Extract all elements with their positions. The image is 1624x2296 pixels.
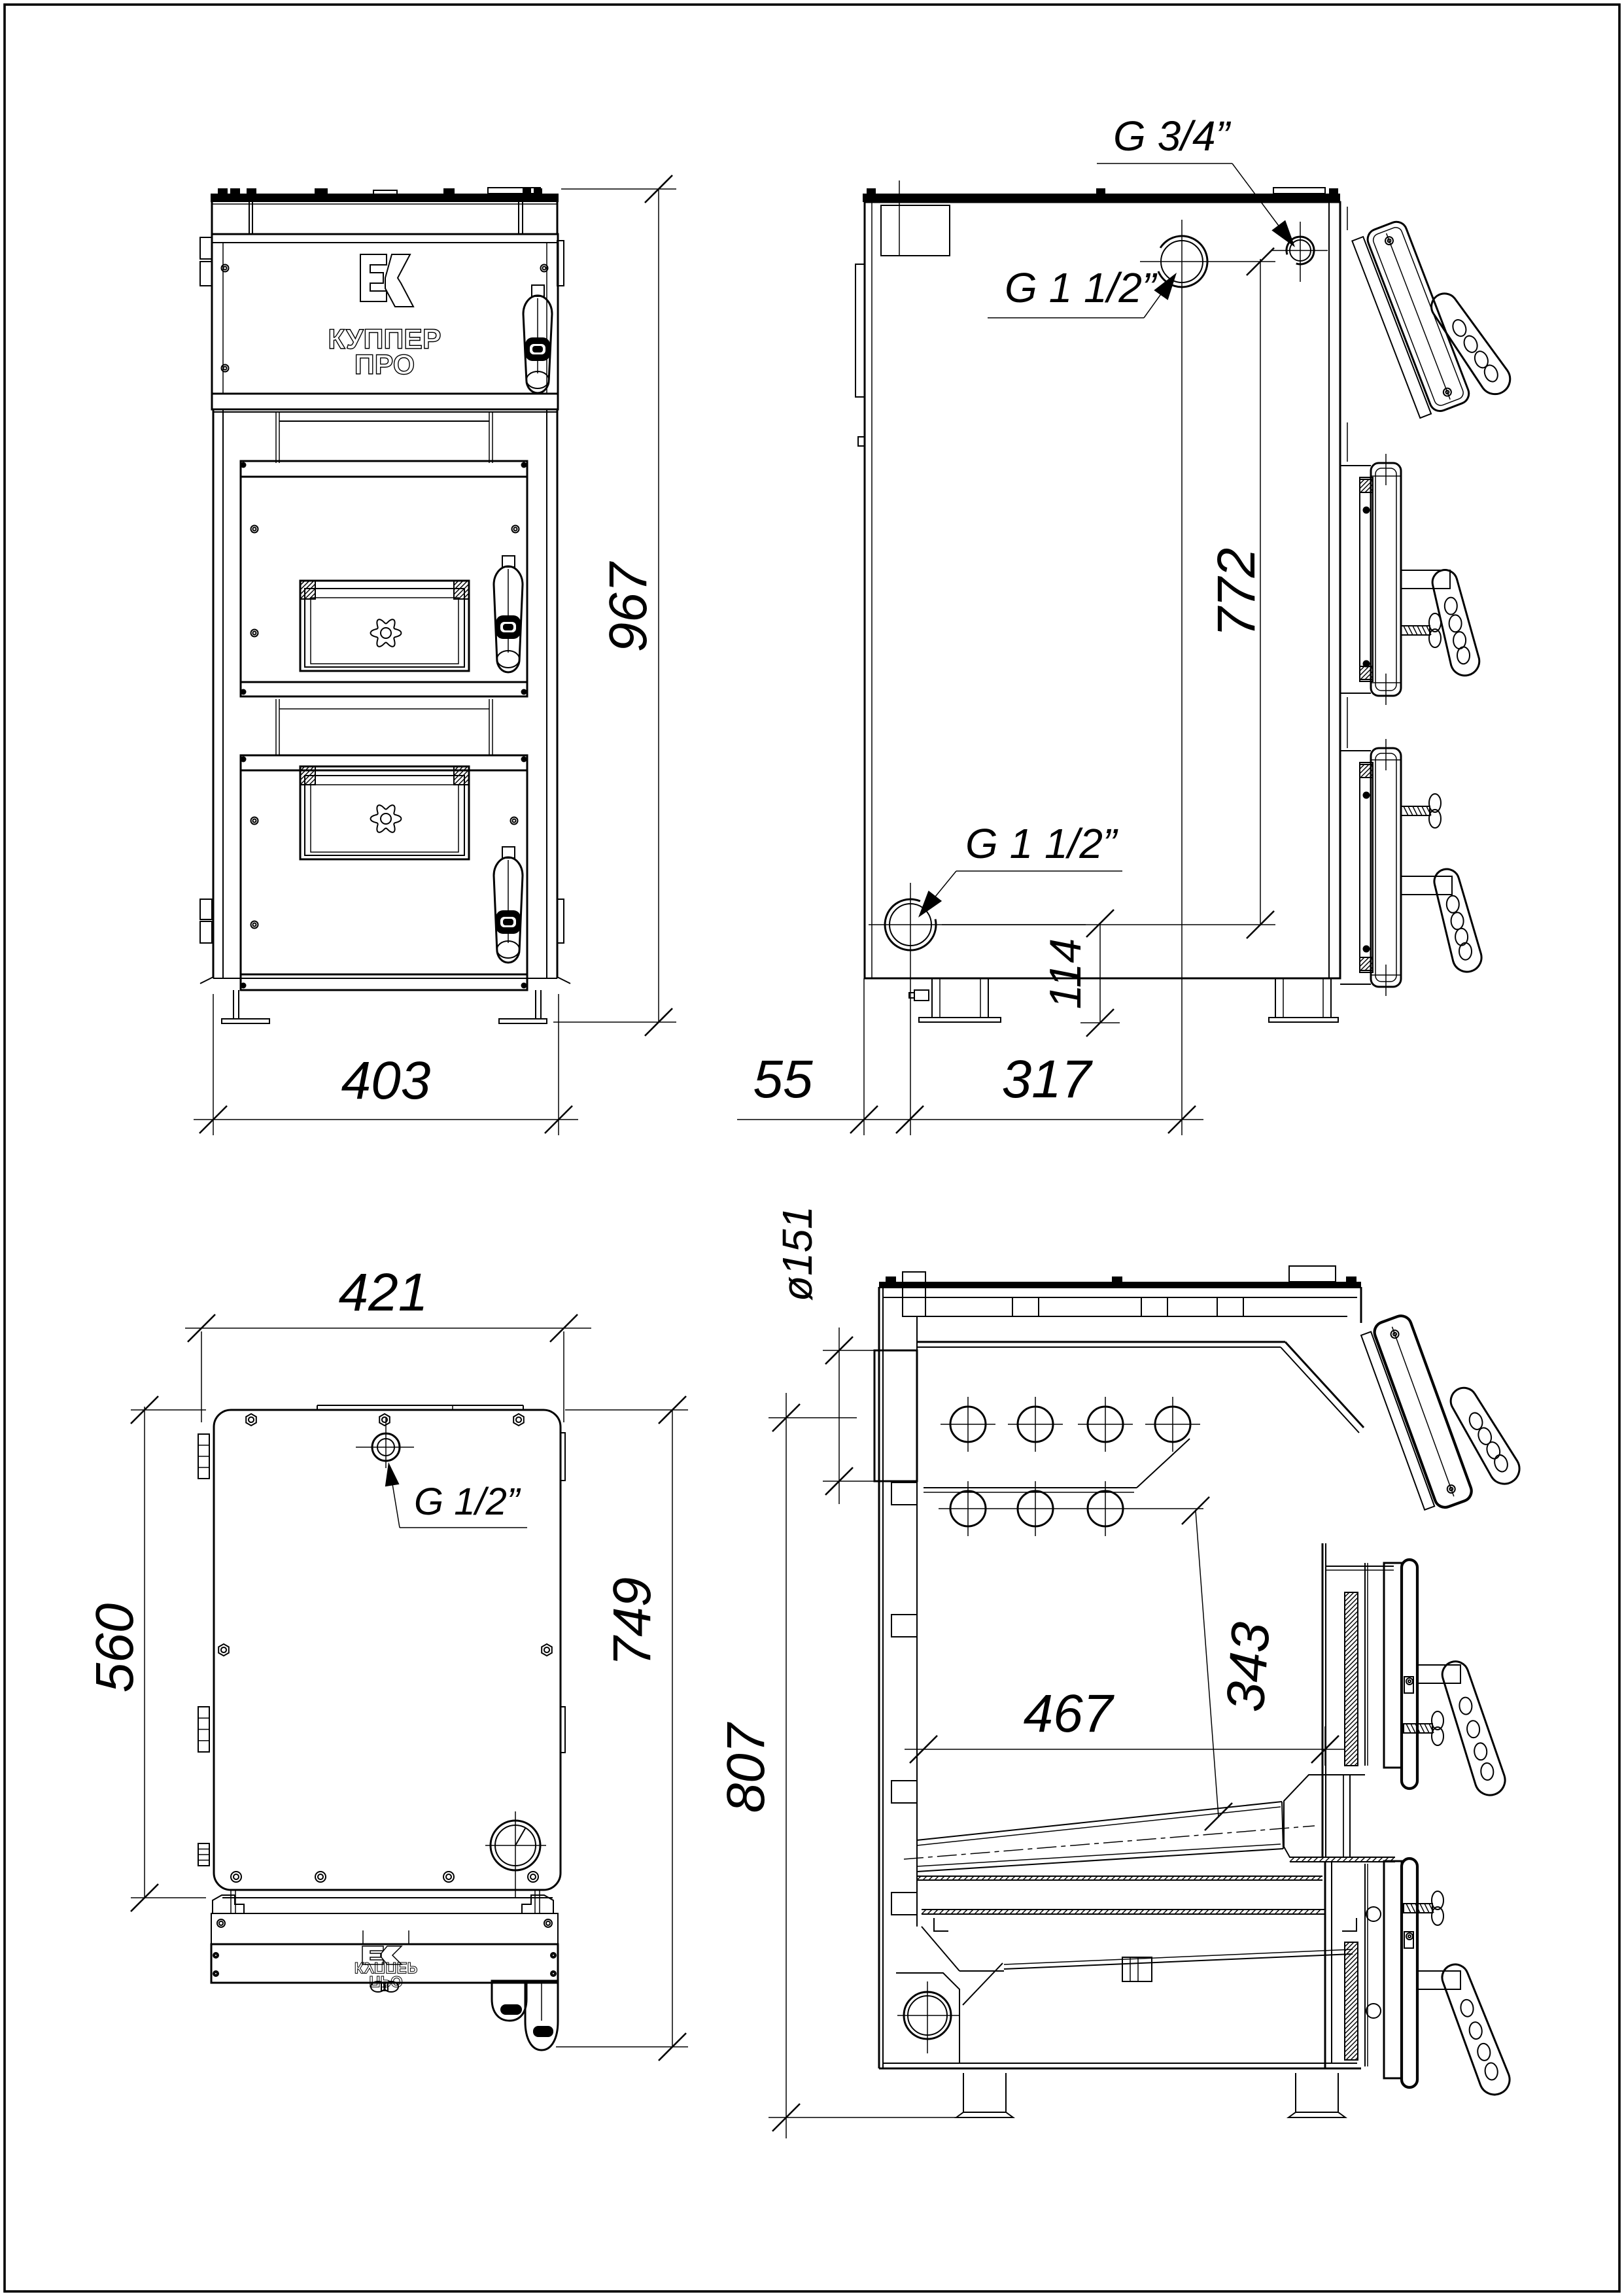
svg-text:G 1/2”: G 1/2” — [414, 1481, 521, 1523]
svg-text:ø151: ø151 — [774, 1206, 821, 1301]
svg-text:ПРО: ПРО — [354, 349, 415, 381]
svg-text:55: 55 — [753, 1050, 813, 1109]
svg-text:772: 772 — [1207, 548, 1266, 638]
svg-text:343: 343 — [1215, 1620, 1281, 1714]
svg-text:G 1 1/2”: G 1 1/2” — [965, 820, 1118, 867]
svg-text:749: 749 — [602, 1577, 662, 1667]
svg-text:G 3/4”: G 3/4” — [1113, 112, 1232, 160]
svg-text:114: 114 — [1041, 938, 1090, 1009]
svg-text:421: 421 — [339, 1263, 428, 1322]
svg-text:403: 403 — [341, 1051, 431, 1110]
svg-text:317: 317 — [1002, 1050, 1094, 1109]
svg-text:G 1 1/2”: G 1 1/2” — [1005, 264, 1158, 311]
svg-text:807: 807 — [716, 1721, 776, 1813]
svg-text:967: 967 — [598, 560, 658, 652]
svg-text:467: 467 — [1024, 1684, 1115, 1743]
svg-text:560: 560 — [85, 1603, 145, 1693]
